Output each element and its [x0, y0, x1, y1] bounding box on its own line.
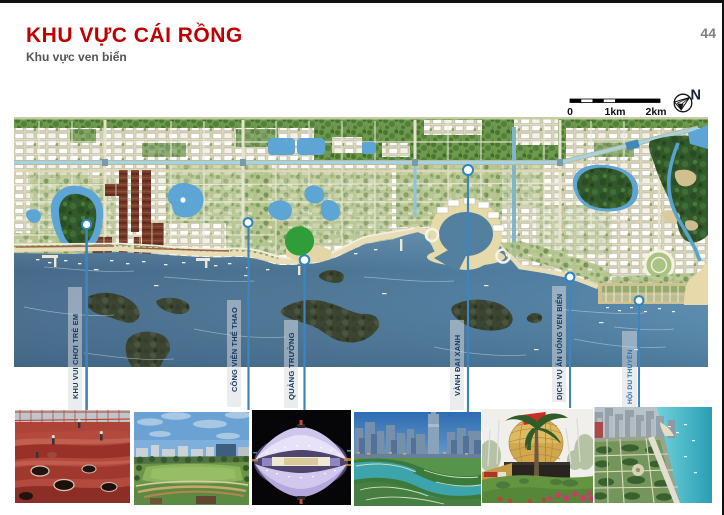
svg-text:CÔNG VIÊN THỂ THAO: CÔNG VIÊN THỂ THAO: [230, 307, 239, 392]
svg-text:VÀNH ĐAI XANH: VÀNH ĐAI XANH: [453, 335, 462, 396]
svg-text:DỊCH VỤ ĂN UỐNG VEN BIỂN: DỊCH VỤ ĂN UỐNG VEN BIỂN: [554, 294, 564, 400]
svg-text:QUẢNG TRƯỜNG: QUẢNG TRƯỜNG: [287, 332, 296, 400]
svg-text:KHU VUI CHƠI TRẺ EM: KHU VUI CHƠI TRẺ EM: [71, 314, 80, 399]
